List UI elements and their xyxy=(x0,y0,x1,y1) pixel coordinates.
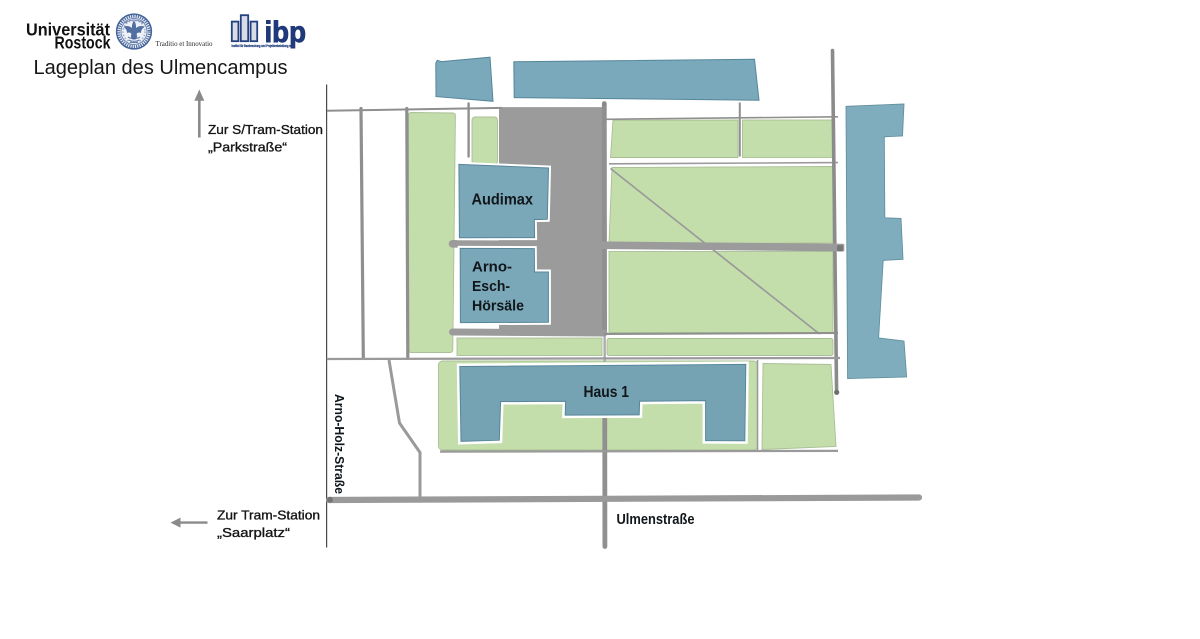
svg-text:Esch-: Esch- xyxy=(472,278,510,295)
svg-text:„Parkstraße“: „Parkstraße“ xyxy=(208,140,287,155)
svg-text:Ulmenstraße: Ulmenstraße xyxy=(617,512,695,528)
svg-text:Arno-Holz-Straße: Arno-Holz-Straße xyxy=(332,394,347,494)
svg-text:Rostock: Rostock xyxy=(55,33,111,53)
svg-text:Institut für Bauforschung und: Institut für Bauforschung und Projektent… xyxy=(232,44,295,48)
svg-text:Zur S/Tram-Station: Zur S/Tram-Station xyxy=(208,122,323,137)
svg-text:Arno-: Arno- xyxy=(472,259,512,276)
svg-text:Lageplan des Ulmencampus: Lageplan des Ulmencampus xyxy=(34,56,288,79)
svg-text:Haus 1: Haus 1 xyxy=(584,384,630,401)
svg-text:Audimax: Audimax xyxy=(472,191,534,208)
svg-text:Traditio et Innovatio: Traditio et Innovatio xyxy=(156,39,213,48)
svg-text:„Saarplatz“: „Saarplatz“ xyxy=(217,525,290,540)
svg-text:Hörsäle: Hörsäle xyxy=(472,297,524,314)
svg-text:Zur Tram-Station: Zur Tram-Station xyxy=(217,508,320,523)
